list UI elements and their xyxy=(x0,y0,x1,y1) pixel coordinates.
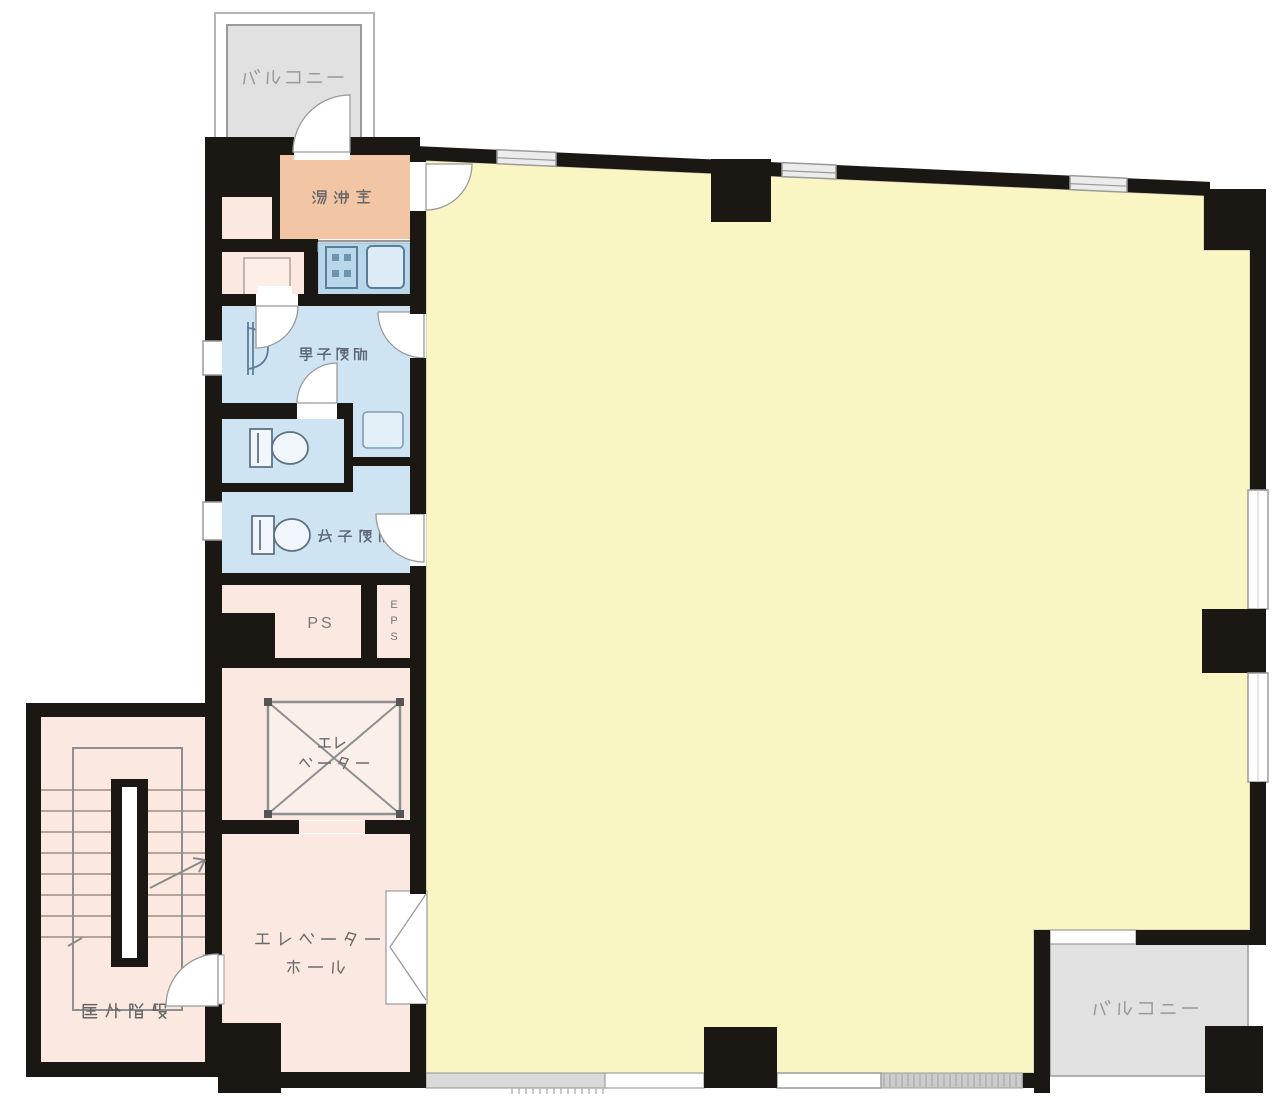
svg-text:PS: PS xyxy=(307,615,334,632)
svg-text:E: E xyxy=(390,599,397,611)
svg-text:P: P xyxy=(390,615,397,627)
svg-text:S: S xyxy=(390,631,397,643)
